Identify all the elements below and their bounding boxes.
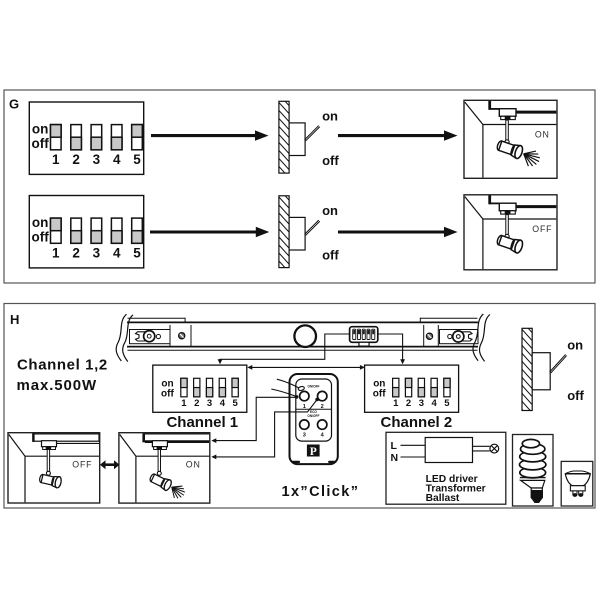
svg-text:1x”Click”: 1x”Click” (282, 484, 360, 500)
svg-text:on: on (322, 203, 338, 218)
svg-text:ON: ON (535, 129, 550, 139)
svg-text:1: 1 (303, 404, 306, 410)
svg-text:OFF: OFF (532, 224, 552, 234)
svg-text:3: 3 (93, 152, 101, 167)
svg-text:off: off (322, 153, 339, 168)
svg-text:4: 4 (113, 245, 121, 260)
svg-text:2: 2 (194, 398, 199, 409)
svg-text:2: 2 (72, 245, 80, 260)
svg-text:2: 2 (321, 404, 324, 410)
svg-text:on: on (567, 337, 583, 352)
svg-text:5: 5 (444, 398, 450, 409)
svg-text:on: on (32, 122, 49, 137)
svg-text:Channel 1: Channel 1 (166, 414, 238, 431)
svg-text:off: off (567, 388, 584, 403)
svg-text:Ballast: Ballast (426, 493, 460, 504)
svg-text:4: 4 (432, 398, 438, 409)
svg-text:Channel 1,2: Channel 1,2 (17, 357, 108, 374)
svg-text:off: off (32, 230, 50, 245)
svg-text:off: off (322, 248, 339, 263)
svg-text:1: 1 (393, 398, 399, 409)
svg-text:Channel 2: Channel 2 (381, 414, 453, 431)
svg-text:off: off (161, 389, 174, 400)
svg-text:OFF: OFF (72, 460, 92, 470)
svg-text:5: 5 (133, 245, 141, 260)
svg-text:4: 4 (113, 152, 121, 167)
svg-text:2: 2 (72, 152, 80, 167)
svg-text:5: 5 (233, 398, 239, 409)
svg-text:3: 3 (419, 398, 424, 409)
svg-text:N: N (391, 452, 399, 464)
svg-text:G: G (9, 97, 19, 112)
svg-text:P: P (310, 446, 317, 458)
svg-text:ON/OFF: ON/OFF (307, 414, 319, 418)
svg-text:3: 3 (207, 398, 212, 409)
svg-text:off: off (373, 389, 386, 400)
svg-text:4: 4 (220, 398, 226, 409)
svg-text:ON: ON (186, 460, 201, 470)
svg-text:2: 2 (406, 398, 411, 409)
svg-text:5: 5 (133, 152, 141, 167)
svg-text:H: H (10, 312, 19, 327)
svg-text:1: 1 (52, 245, 60, 260)
svg-text:off: off (32, 136, 50, 151)
svg-text:1: 1 (181, 398, 187, 409)
svg-text:on: on (32, 215, 49, 230)
svg-text:L: L (391, 440, 398, 452)
svg-text:3: 3 (303, 432, 306, 438)
svg-text:on: on (322, 109, 338, 124)
svg-text:1: 1 (52, 152, 60, 167)
svg-text:3: 3 (93, 245, 101, 260)
svg-text:max.500W: max.500W (17, 377, 98, 394)
svg-text:ON/OFF: ON/OFF (307, 384, 319, 388)
